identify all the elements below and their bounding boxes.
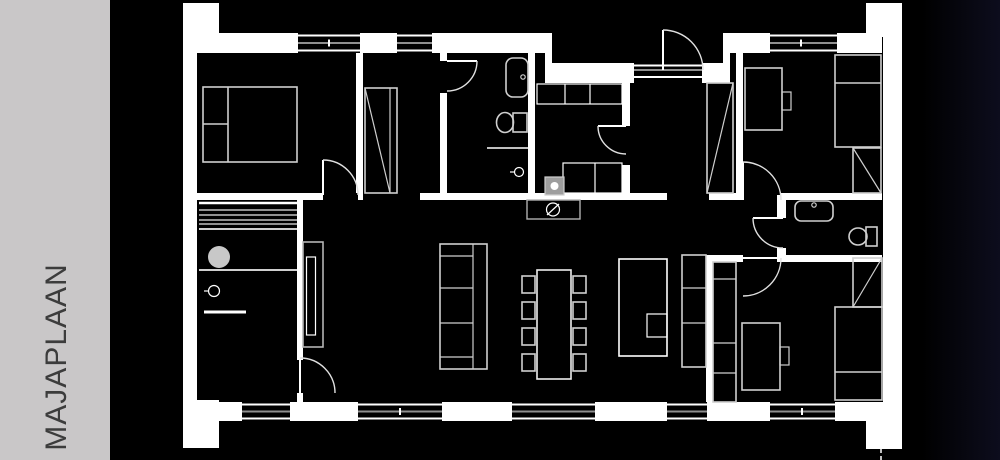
wall-wc-east-b bbox=[622, 165, 630, 193]
sofa bbox=[440, 244, 487, 369]
door-bedroom2 bbox=[743, 162, 781, 200]
bedroom-3 bbox=[713, 258, 882, 402]
toilet bbox=[497, 113, 528, 133]
door-bedroom1 bbox=[323, 160, 358, 195]
north-wall-left bbox=[183, 33, 545, 53]
kitchen-counter bbox=[682, 255, 706, 367]
screenshot-root: MAJAPLAAN bbox=[0, 0, 1000, 460]
single-bed bbox=[835, 55, 881, 147]
east-wall bbox=[883, 33, 902, 421]
door-bedroom3 bbox=[743, 258, 781, 296]
wall-living-north-1 bbox=[197, 193, 323, 200]
single-bed bbox=[835, 307, 882, 400]
window-south-5 bbox=[770, 402, 835, 421]
washing-machine bbox=[545, 177, 564, 195]
wall-hall-north bbox=[709, 193, 743, 200]
wall-hall-south bbox=[706, 255, 743, 262]
wall-living-north-4 bbox=[630, 193, 667, 200]
corner-wardrobe bbox=[853, 148, 881, 193]
window-north-1 bbox=[298, 33, 360, 53]
double-bed bbox=[203, 87, 297, 162]
wall-cabinets bbox=[537, 84, 622, 104]
bathtub bbox=[795, 201, 833, 221]
corner-pilaster-top-left bbox=[183, 3, 219, 33]
desk bbox=[745, 68, 791, 130]
wall-vestibule-east bbox=[736, 53, 743, 193]
bedroom-1 bbox=[203, 87, 397, 193]
window-south-3 bbox=[512, 402, 595, 421]
utility-wc bbox=[537, 84, 622, 195]
living-dining-kitchen bbox=[303, 200, 706, 379]
wall-bedroom1-east bbox=[356, 53, 363, 193]
bathroom-2 bbox=[795, 201, 877, 246]
exterior-walls bbox=[183, 3, 902, 449]
closet bbox=[707, 83, 733, 193]
fireplace bbox=[303, 242, 323, 347]
desk-chair bbox=[782, 92, 791, 110]
west-wall bbox=[183, 33, 197, 402]
window-south-2 bbox=[358, 402, 442, 421]
sauna-heater bbox=[208, 246, 230, 268]
wall-living-north-2 bbox=[358, 193, 363, 200]
entry-recess-conn-left bbox=[545, 33, 552, 83]
bathroom-1 bbox=[487, 58, 528, 177]
bedroom-2 bbox=[745, 55, 881, 193]
wall-living-north-3 bbox=[420, 193, 630, 200]
base-cabinets bbox=[563, 163, 622, 193]
corner-wardrobe bbox=[853, 258, 882, 307]
window-north-3 bbox=[770, 33, 837, 53]
wall-sauna-east-a bbox=[297, 200, 303, 360]
door-bathroom2 bbox=[753, 218, 783, 248]
entry-opening-threshold bbox=[633, 63, 703, 83]
door-sauna bbox=[300, 358, 335, 393]
wall-bathroom1-west-a bbox=[440, 53, 447, 61]
window-north-2 bbox=[397, 33, 432, 53]
cooktop-appliance bbox=[527, 200, 580, 219]
kitchen-island bbox=[619, 259, 667, 356]
shower-drain bbox=[510, 168, 524, 177]
wall-bedroom3-west bbox=[706, 255, 713, 402]
desk bbox=[742, 323, 789, 390]
wardrobe bbox=[365, 88, 397, 193]
wall-bedroom2-south bbox=[781, 193, 882, 200]
dining-table bbox=[537, 270, 571, 379]
toilet bbox=[849, 227, 877, 246]
wall-wc-east-a bbox=[622, 83, 630, 126]
door-wc bbox=[598, 126, 626, 154]
corner-pilaster-bottom-right bbox=[866, 421, 902, 449]
wall-sauna-east-b bbox=[297, 393, 303, 402]
island-sink bbox=[647, 314, 667, 337]
wall-bathroom1-west-b bbox=[440, 93, 447, 200]
closet-column bbox=[713, 262, 736, 402]
entry-vestibule bbox=[707, 83, 733, 193]
sauna-shower bbox=[199, 203, 297, 312]
door-bathroom1 bbox=[447, 61, 477, 91]
floor-plan-drawing bbox=[0, 0, 1000, 460]
window-south-4 bbox=[667, 402, 707, 421]
desk-chair bbox=[780, 347, 789, 365]
floor-drain bbox=[204, 286, 220, 297]
window-south-1 bbox=[242, 402, 290, 421]
bathtub bbox=[506, 58, 528, 97]
wall-bathroom1-east bbox=[528, 53, 535, 193]
corner-pilaster-top-right bbox=[866, 3, 902, 37]
